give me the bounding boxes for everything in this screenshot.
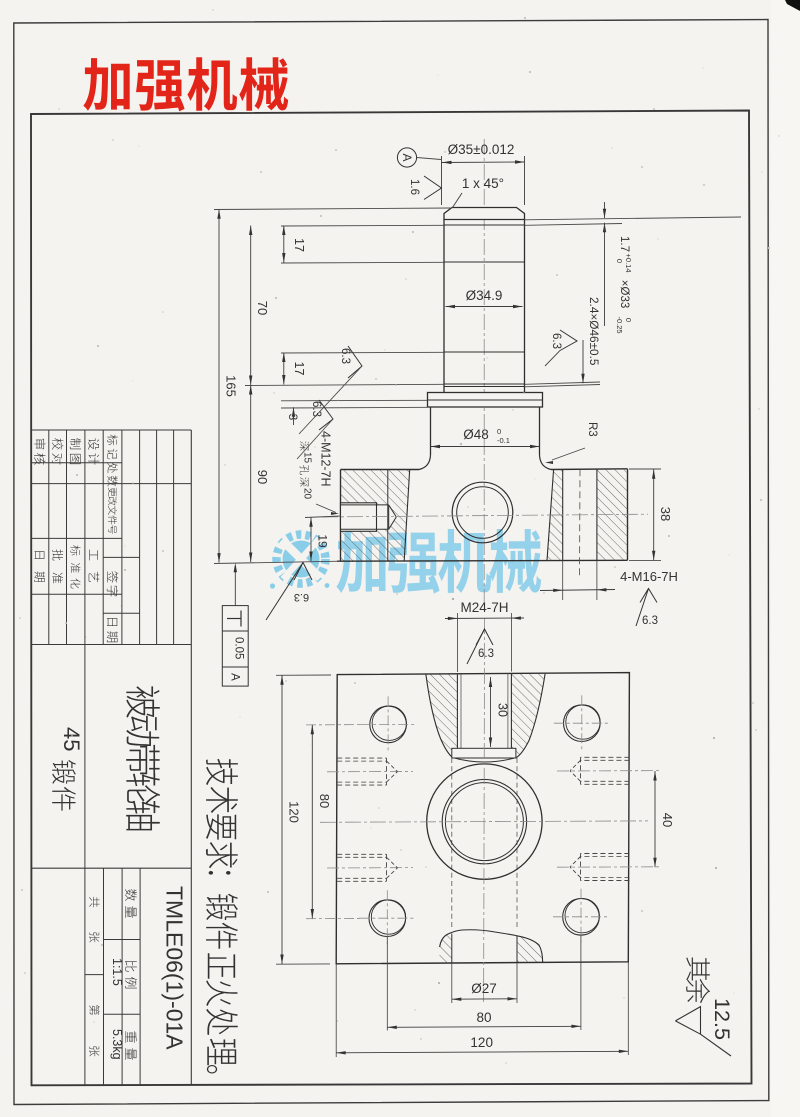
svg-text:A: A xyxy=(400,153,414,161)
svg-text:80: 80 xyxy=(317,794,332,808)
svg-text:+0.14: +0.14 xyxy=(624,254,633,273)
svg-text:3: 3 xyxy=(286,414,300,421)
svg-text:0.05: 0.05 xyxy=(233,637,245,659)
svg-text:1:1.5: 1:1.5 xyxy=(110,958,124,986)
svg-text:90: 90 xyxy=(255,470,270,484)
svg-text:0: 0 xyxy=(497,427,501,436)
svg-text:12.5: 12.5 xyxy=(710,998,735,1040)
svg-text:×Ø33: ×Ø33 xyxy=(618,280,630,308)
svg-text:120: 120 xyxy=(470,1035,493,1050)
svg-text:-0.1: -0.1 xyxy=(497,436,510,445)
svg-text:120: 120 xyxy=(287,801,302,823)
svg-text:17: 17 xyxy=(292,362,306,376)
svg-text:45: 45 xyxy=(59,727,84,751)
svg-text:6.3: 6.3 xyxy=(642,615,658,627)
svg-text:6.3: 6.3 xyxy=(294,591,309,603)
svg-text:A: A xyxy=(229,673,241,681)
svg-text:R3: R3 xyxy=(586,422,598,437)
svg-text:19: 19 xyxy=(316,534,330,548)
svg-text:Ø35±0.012: Ø35±0.012 xyxy=(448,142,515,157)
svg-text:70: 70 xyxy=(255,301,270,315)
svg-text:6.3: 6.3 xyxy=(310,401,322,417)
svg-text:-0.25: -0.25 xyxy=(615,316,624,333)
svg-text:30: 30 xyxy=(496,703,510,717)
svg-text:38: 38 xyxy=(658,507,673,521)
svg-text:Ø27: Ø27 xyxy=(471,981,497,996)
svg-text:4-M12-7H: 4-M12-7H xyxy=(319,431,333,487)
svg-text:Ø34.9: Ø34.9 xyxy=(466,288,503,303)
svg-text:6.3: 6.3 xyxy=(339,348,351,364)
svg-text:2.4×Ø46±0.5: 2.4×Ø46±0.5 xyxy=(587,297,601,366)
svg-text:6.3: 6.3 xyxy=(478,648,494,660)
svg-text:1 x 45°: 1 x 45° xyxy=(462,176,504,191)
svg-text:M24-7H: M24-7H xyxy=(460,600,508,615)
svg-text:4-M16-7H: 4-M16-7H xyxy=(620,569,678,584)
svg-text:6.3: 6.3 xyxy=(550,333,562,349)
svg-text:Ø48: Ø48 xyxy=(463,427,489,442)
svg-text:0: 0 xyxy=(615,259,624,263)
svg-text:40: 40 xyxy=(660,813,675,827)
svg-text:TMLE06(1)-01A: TMLE06(1)-01A xyxy=(162,886,188,1050)
svg-text:1.6: 1.6 xyxy=(408,179,420,195)
svg-text:5.3kg: 5.3kg xyxy=(110,1029,124,1060)
svg-text:20: 20 xyxy=(302,488,313,500)
svg-text:0: 0 xyxy=(624,318,633,322)
svg-text:15: 15 xyxy=(302,452,313,464)
svg-text:17: 17 xyxy=(292,238,306,252)
svg-text:1.7: 1.7 xyxy=(618,236,630,252)
svg-text:80: 80 xyxy=(476,1010,491,1025)
svg-text:165: 165 xyxy=(224,375,239,397)
